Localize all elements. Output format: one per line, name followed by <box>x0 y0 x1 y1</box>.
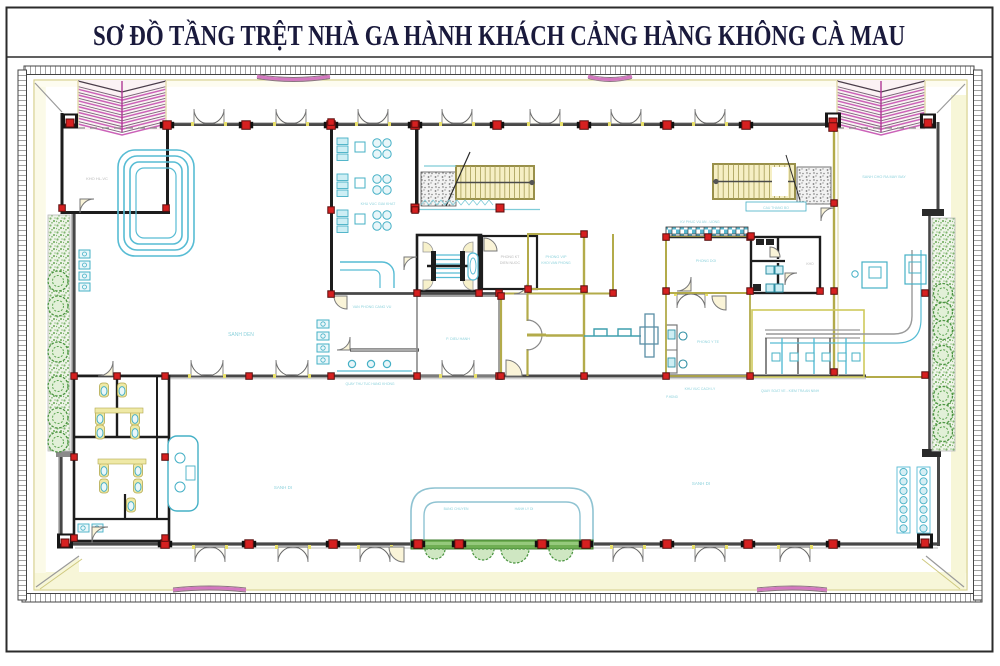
svg-text:VAN PHONG CANG VU: VAN PHONG CANG VU <box>353 305 392 309</box>
svg-text:SANH DI: SANH DI <box>692 481 710 486</box>
svg-text:PHONG DOI: PHONG DOI <box>696 259 717 263</box>
svg-text:SANH CHO RA MAY BAY: SANH CHO RA MAY BAY <box>862 175 906 179</box>
svg-text:PHONG VIP: PHONG VIP <box>545 255 567 259</box>
svg-text:BANG CHUYEN: BANG CHUYEN <box>444 507 469 511</box>
svg-text:SANH DI: SANH DI <box>274 485 292 490</box>
svg-text:KV PHUC VU AN - UONG: KV PHUC VU AN - UONG <box>680 220 720 224</box>
svg-text:KHU VUC CACH LY: KHU VUC CACH LY <box>685 387 716 391</box>
svg-text:P. DIEU HANH: P. DIEU HANH <box>446 337 470 341</box>
svg-text:CAU THANG BO: CAU THANG BO <box>763 206 789 210</box>
svg-text:KHO: KHO <box>806 262 814 266</box>
svg-text:QUAY SOAT VE - KIEM TRA AN NIN: QUAY SOAT VE - KIEM TRA AN NINH <box>761 389 820 393</box>
svg-text:KHU VUC GIAI KHAT: KHU VUC GIAI KHAT <box>361 202 396 206</box>
svg-text:SANH DEN: SANH DEN <box>228 332 254 338</box>
svg-text:DIEN NUOC: DIEN NUOC <box>500 261 521 265</box>
svg-text:QUAY THU TUC HANG KHONG: QUAY THU TUC HANG KHONG <box>345 382 394 386</box>
svg-text:KHO HL-VC: KHO HL-VC <box>86 176 108 181</box>
svg-text:PHONG Y TE: PHONG Y TE <box>697 340 720 344</box>
svg-text:KHOI VAN PHONG: KHOI VAN PHONG <box>541 261 571 265</box>
svg-text:HANH LY DI: HANH LY DI <box>515 507 534 511</box>
svg-text:PHONG KT: PHONG KT <box>501 255 521 259</box>
svg-text:SƠ ĐỒ TẦNG TRỆT NHÀ GA HÀNH KH: SƠ ĐỒ TẦNG TRỆT NHÀ GA HÀNH KHÁCH CẢNG H… <box>93 18 905 52</box>
svg-text:P.HDND: P.HDND <box>666 395 679 399</box>
